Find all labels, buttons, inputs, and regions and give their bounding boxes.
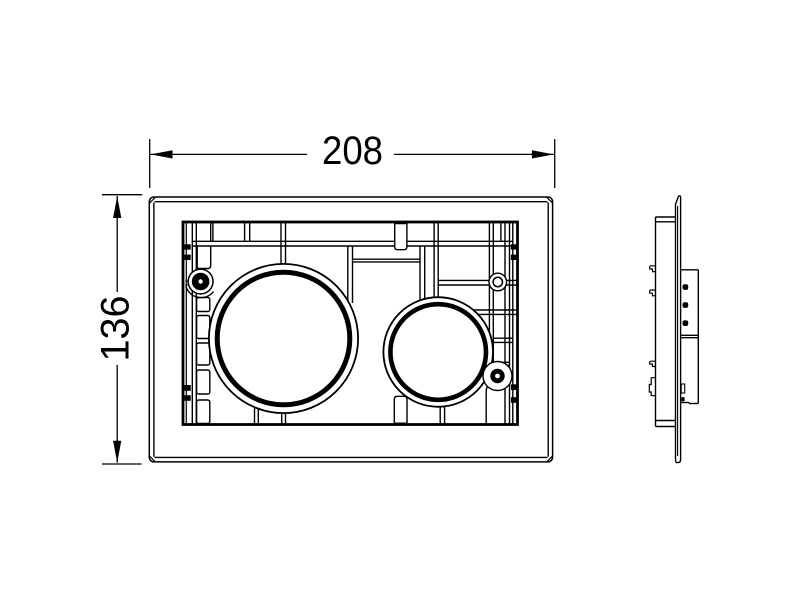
svg-text:136: 136 xyxy=(94,296,138,362)
svg-text:208: 208 xyxy=(322,129,383,173)
